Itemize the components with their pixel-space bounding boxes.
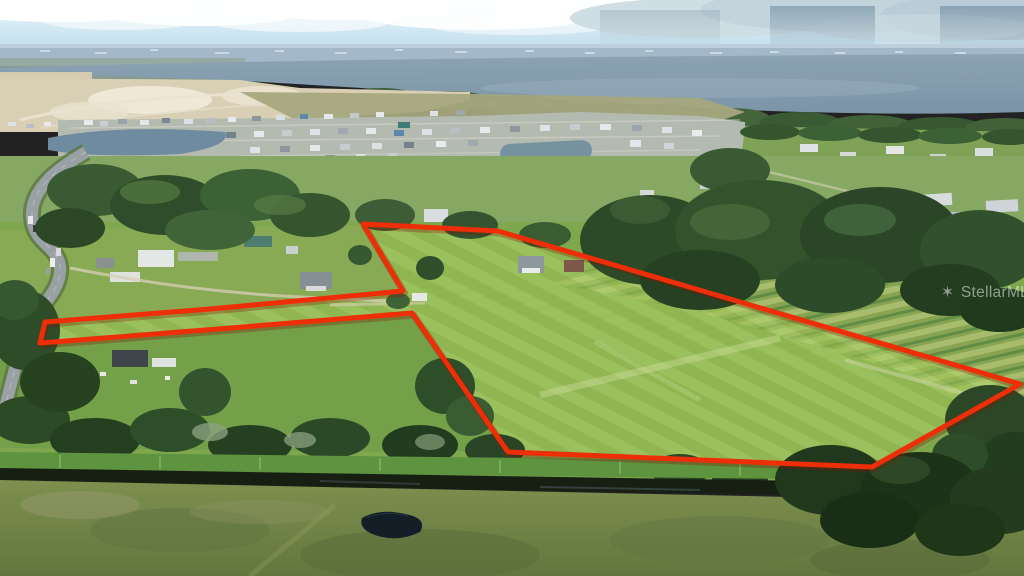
aerial-photo: ✶ StellarMLS xyxy=(0,0,1024,576)
svg-text:✶ StellarMLS: ✶ StellarMLS xyxy=(941,284,1024,301)
farmhouse-porch xyxy=(306,286,326,291)
lake-highlight xyxy=(480,78,920,98)
dark-roof-house xyxy=(112,350,148,367)
aerial-photo-canvas: ✶ StellarMLS xyxy=(0,0,1024,576)
yard-debris xyxy=(130,380,137,384)
watermark-text: StellarMLS xyxy=(961,284,1024,301)
watermark-star-icon: ✶ xyxy=(941,284,954,301)
warehouse xyxy=(138,250,174,267)
barn xyxy=(96,258,114,268)
red-shed xyxy=(564,260,584,272)
greenhouse xyxy=(178,252,218,261)
house-wall xyxy=(522,268,540,273)
camper-trailer xyxy=(412,293,427,301)
outbuilding xyxy=(286,246,298,254)
yard-debris xyxy=(165,376,170,380)
yard-debris xyxy=(100,372,106,376)
watermark: ✶ StellarMLS xyxy=(941,284,1024,301)
white-trailer xyxy=(152,358,176,367)
